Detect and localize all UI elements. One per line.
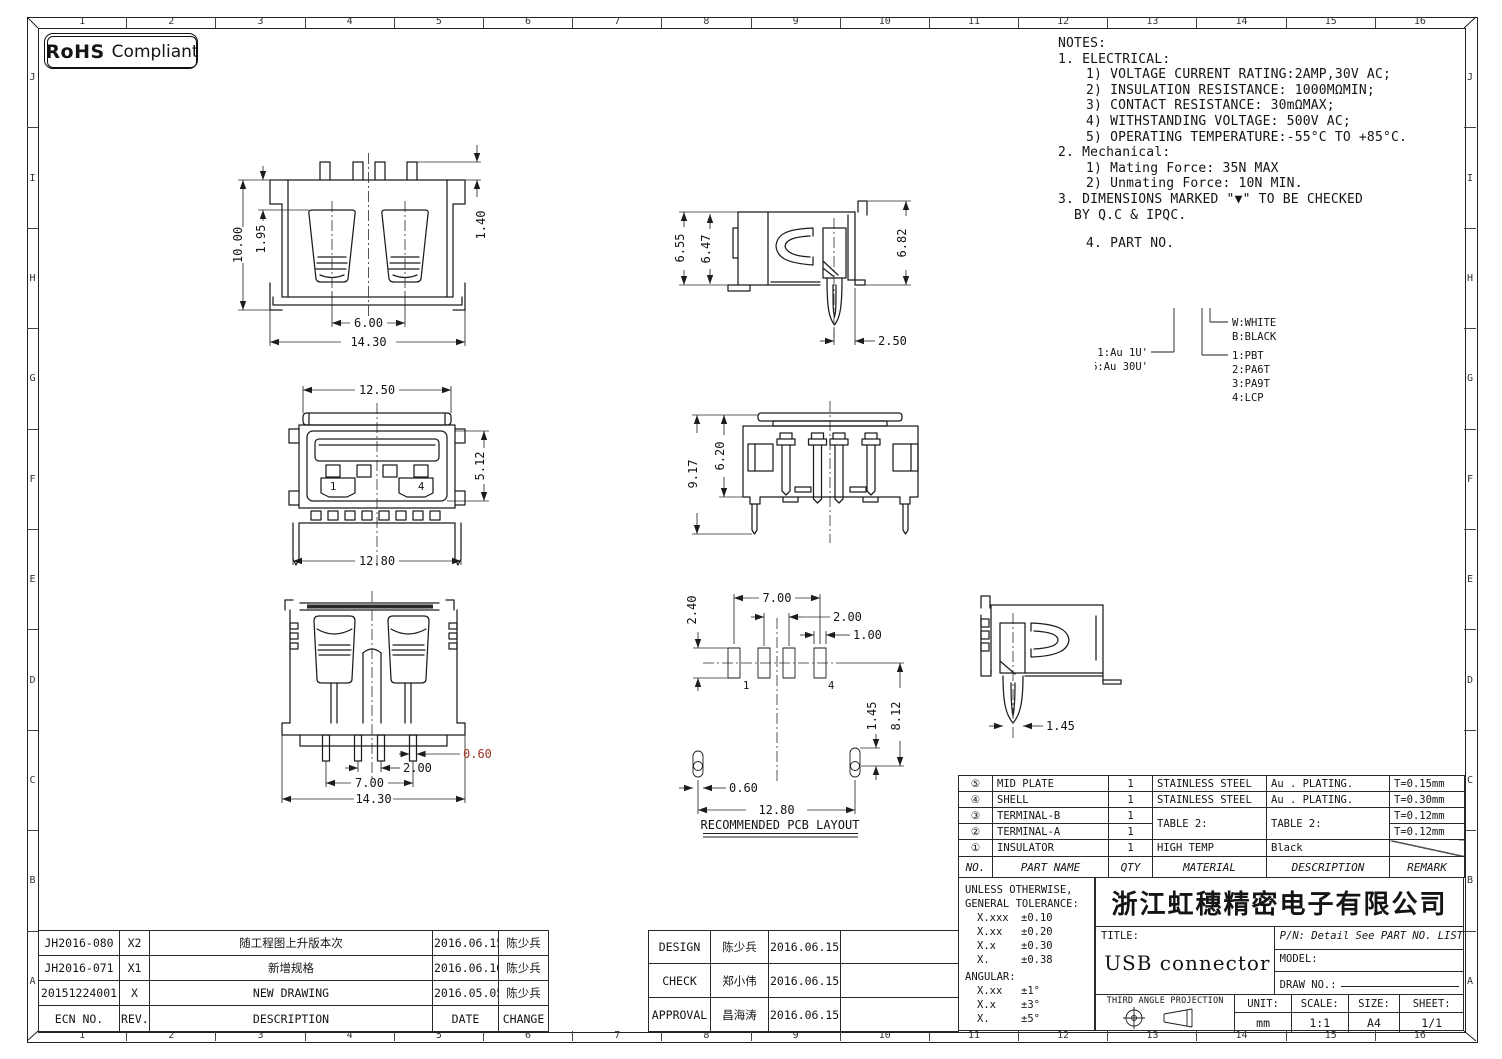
notes-line: 4. PART NO. — [1058, 236, 1468, 252]
notes-line: 2. Mechanical: — [1058, 145, 1468, 161]
company-name: 浙江虹穗精密电子有限公司 — [1096, 878, 1463, 927]
notes-line: 2) Unmating Force: 10N MIN. — [1058, 176, 1468, 192]
approval-date: 2016.06.15 — [769, 998, 841, 1032]
bom-remark-slash — [1390, 840, 1465, 857]
bom-no: ⑤ — [959, 776, 993, 792]
notes-line: 1) Mating Force: 35N MAX — [1058, 161, 1468, 177]
dim-label: 12.80 — [758, 803, 794, 817]
grid-label: 4 — [306, 17, 395, 28]
view-side-smd: 1.45 — [953, 583, 1173, 768]
projection-label: THIRD ANGLE PROJECTION — [1096, 996, 1234, 1006]
legend-leader-lines — [1151, 308, 1228, 355]
grid-label: 9 — [752, 17, 841, 28]
bom-material: STAINLESS STEEL — [1153, 776, 1267, 792]
notes-line: BY Q.C & IPQC. — [1058, 208, 1468, 224]
approval-name: 昌海涛 — [711, 998, 769, 1032]
part-number-line: P/N: Detail See PART NO. LIST — [1275, 927, 1463, 950]
grid-label: 11 — [930, 17, 1019, 28]
grid-label: G — [27, 329, 38, 429]
table-row: 20151224001 X NEW DRAWING 2016.05.05 陈少兵 — [39, 981, 549, 1006]
table-row: ③ TERMINAL-B 1 TABLE 2: TABLE 2: T=0.12m… — [959, 808, 1465, 824]
notes-block: NOTES: 1. ELECTRICAL: 1) VOLTAGE CURRENT… — [1058, 36, 1468, 252]
scale-cell: SCALE: 1:1 — [1292, 995, 1349, 1032]
approval-name: 陈少兵 — [711, 931, 769, 964]
dim-label: 2.00 — [833, 610, 862, 624]
rev-date: 2016.05.05 — [433, 981, 499, 1006]
dim-label: 5.12 — [473, 452, 487, 481]
tol-label: X.x — [977, 939, 1021, 953]
rev-header-date: DATE — [433, 1006, 499, 1032]
bom-table: ⑤ MID PLATE 1 STAINLESS STEEL Au . PLATI… — [958, 775, 1465, 878]
bom-no: ① — [959, 840, 993, 857]
tol-label: X. — [977, 1012, 1021, 1026]
sheet-label: SHEET: — [1400, 995, 1463, 1013]
dim-label: 7.00 — [763, 591, 792, 605]
bom-no: ② — [959, 824, 993, 840]
grid-label: 11 — [930, 1031, 1019, 1041]
rev-ecn: JH2016-080 — [39, 931, 120, 956]
grid-label: H — [27, 229, 38, 329]
bom-part: MID PLATE — [993, 776, 1109, 792]
dim-label: 2.40 — [685, 596, 699, 625]
view-bottom: 0.60 2.00 7.00 14.30 — [257, 583, 537, 813]
scale-value: 1:1 — [1292, 1013, 1348, 1032]
legend-material-3: 3:PA9T — [1232, 378, 1271, 390]
grid-label: 8 — [662, 17, 751, 28]
rev-ecn: JH2016-071 — [39, 956, 120, 981]
bom-qty: 1 — [1109, 776, 1153, 792]
grid-label: E — [27, 530, 38, 630]
dim-label: 1.40 — [474, 211, 488, 240]
model-label: MODEL: — [1275, 950, 1463, 973]
grid-label: I — [27, 128, 38, 228]
rev-header-change: CHANGE — [499, 1006, 549, 1032]
tolerance-title: GENERAL TOLERANCE: — [965, 897, 1094, 911]
grid-label: 2 — [127, 17, 216, 28]
grid-label: G — [1464, 329, 1476, 429]
bom-part: SHELL — [993, 792, 1109, 808]
bom-material: HIGH TEMP — [1153, 840, 1267, 857]
tol-value: ±1° — [1021, 984, 1040, 998]
notes-line: NOTES: — [1058, 36, 1468, 52]
rev-header-rev: REV. — [120, 1006, 150, 1032]
bom-header-no: NO. — [959, 857, 993, 878]
bom-remark: T=0.30mm — [1390, 792, 1465, 808]
pad-number-4: 4 — [828, 680, 834, 692]
grid-label: E — [1464, 530, 1476, 630]
tolerance-angular-title: ANGULAR: — [965, 970, 1094, 984]
notes-line: 4) WITHSTANDING VOLTAGE: 500V AC; — [1058, 114, 1468, 130]
grid-label: 15 — [1287, 1031, 1376, 1041]
grid-label: D — [27, 630, 38, 730]
grid-label: 2 — [127, 1031, 216, 1041]
bom-no: ③ — [959, 808, 993, 824]
table-row: JH2016-080 X2 随工程图上升版本次 2016.06.15 陈少兵 — [39, 931, 549, 956]
approval-role: DESIGN — [649, 931, 711, 964]
grid-label: D — [1464, 630, 1476, 730]
pcb-pads — [693, 648, 860, 777]
projection-cell: THIRD ANGLE PROJECTION — [1096, 995, 1235, 1032]
dim-label: 14.30 — [350, 335, 386, 349]
tol-value: ±0.38 — [1021, 953, 1053, 967]
grid-label: C — [1464, 731, 1476, 831]
border-col-labels-top: 12345678910111213141516 — [38, 17, 1464, 28]
pcb-layout-caption: RECOMMENDED PCB LAYOUT — [701, 818, 860, 832]
rohs-label: RoHS — [45, 41, 104, 63]
bom-remark: T=0.15mm — [1390, 776, 1465, 792]
tolerance-block: UNLESS OTHERWISE, GENERAL TOLERANCE: X.x… — [958, 877, 1095, 1031]
approval-name: 郑小伟 — [711, 964, 769, 998]
grid-label: 15 — [1287, 17, 1376, 28]
grid-label: 5 — [395, 1031, 484, 1041]
side-outline — [728, 201, 867, 325]
bom-material: STAINLESS STEEL — [1153, 792, 1267, 808]
legend-color-white: W:WHITE — [1232, 317, 1276, 329]
tol-label: X. — [977, 953, 1021, 967]
bom-remark: T=0.12mm — [1390, 808, 1465, 824]
unit-label: UNIT: — [1235, 995, 1291, 1013]
table-row: ① INSULATOR 1 HIGH TEMP Black — [959, 840, 1465, 857]
rev-change: 陈少兵 — [499, 956, 549, 981]
title-label: TITLE: — [1101, 930, 1274, 942]
rev-description: NEW DRAWING — [150, 981, 433, 1006]
size-cell: SIZE: A4 — [1349, 995, 1401, 1032]
bom-header-remark: REMARK — [1390, 857, 1465, 878]
title-block: 浙江虹穗精密电子有限公司 TITLE: USB connector P/N: D… — [1095, 877, 1464, 1031]
dim-label: 1.45 — [865, 702, 879, 731]
draw-no-blank-line — [1341, 986, 1459, 987]
tolerance-title: UNLESS OTHERWISE, — [965, 883, 1094, 897]
grid-label: 12 — [1019, 1031, 1108, 1041]
bom-part: TERMINAL-B — [993, 808, 1109, 824]
tol-label: X.xx — [977, 925, 1021, 939]
dim-label: 6.20 — [713, 442, 727, 471]
dim-label: 0.60 — [729, 781, 758, 795]
unit-cell: UNIT: mm — [1235, 995, 1292, 1032]
size-value: A4 — [1349, 1013, 1400, 1032]
grid-label: 7 — [573, 17, 662, 28]
rev-description: 随工程图上升版本次 — [150, 931, 433, 956]
grid-label: 10 — [841, 17, 930, 28]
approval-date: 2016.06.15 — [769, 964, 841, 998]
rev-ecn: 20151224001 — [39, 981, 120, 1006]
grid-label: A — [1464, 932, 1476, 1031]
grid-label: J — [27, 28, 38, 128]
tolerance-row: X.x±3° — [965, 998, 1094, 1012]
pin-number-4: 4 — [418, 481, 424, 493]
rev-date: 2016.06.15 — [433, 931, 499, 956]
third-angle-projection-icon — [1096, 1006, 1234, 1030]
front-outline — [270, 162, 465, 310]
bom-qty: 1 — [1109, 808, 1153, 824]
tolerance-row: X.xx±0.20 — [965, 925, 1094, 939]
grid-label: 16 — [1376, 17, 1464, 28]
bom-header-qty: QTY — [1109, 857, 1153, 878]
view-side: 6.55 6.47 6.82 2.50 — [663, 183, 933, 363]
table-row: ECN NO. REV. DESCRIPTION DATE CHANGE — [39, 1006, 549, 1032]
dim-label: 9.17 — [686, 460, 700, 489]
border-col-labels-bottom: 12345678910111213141516 — [38, 1031, 1464, 1041]
approval-empty — [841, 931, 959, 964]
view-front: 10.00 1.95 1.40 6.00 14.30 — [225, 133, 525, 358]
grid-label: F — [1464, 430, 1476, 530]
bom-description-merged: TABLE 2: — [1267, 808, 1390, 840]
title-cell: TITLE: USB connector — [1096, 927, 1275, 994]
notes-line: 1. ELECTRICAL: — [1058, 52, 1468, 68]
grid-label: 7 — [573, 1031, 662, 1041]
notes-line: 3) CONTACT RESISTANCE: 30mΩMAX; — [1058, 98, 1468, 114]
dim-label: 6.82 — [895, 229, 909, 258]
tol-value: ±0.10 — [1021, 911, 1053, 925]
dim-label: 10.00 — [231, 227, 245, 263]
dim-label: 1.00 — [853, 628, 882, 642]
grid-label: 12 — [1019, 17, 1108, 28]
rev-rev: X1 — [120, 956, 150, 981]
grid-label: 4 — [306, 1031, 395, 1041]
grid-label: F — [27, 430, 38, 530]
front-centerlines — [332, 153, 405, 318]
rev-date: 2016.06.10 — [433, 956, 499, 981]
legend-material-1: 1:PBT — [1232, 350, 1264, 362]
drawing-sheet: 12345678910111213141516 1234567891011121… — [0, 0, 1502, 1059]
bom-qty: 1 — [1109, 824, 1153, 840]
bom-no: ④ — [959, 792, 993, 808]
legend-plating-2: 6:Au 30U' — [1095, 361, 1148, 373]
grid-label: 9 — [752, 1031, 841, 1041]
tol-value: ±0.30 — [1021, 939, 1053, 953]
tolerance-row: X.xxx±0.10 — [965, 911, 1094, 925]
table-row: JH2016-071 X1 新增规格 2016.06.10 陈少兵 — [39, 956, 549, 981]
bom-header-material: MATERIAL — [1153, 857, 1267, 878]
bom-description: Au . PLATING. — [1267, 776, 1390, 792]
grid-label: 5 — [395, 17, 484, 28]
dim-label: 2.50 — [878, 334, 907, 348]
grid-label: 1 — [38, 17, 127, 28]
grid-label: 10 — [841, 1031, 930, 1041]
compliant-label: Compliant — [112, 42, 199, 62]
part-no-legend: 1:Au 1U' 6:Au 30U' W:WHITE B:BLACK 1:PBT… — [1095, 295, 1355, 410]
dim-label: 7.00 — [355, 776, 384, 790]
bom-material-merged: TABLE 2: — [1153, 808, 1267, 840]
grid-label: 14 — [1197, 17, 1286, 28]
table-row: ④ SHELL 1 STAINLESS STEEL Au . PLATING. … — [959, 792, 1465, 808]
grid-label: 3 — [216, 17, 305, 28]
rohs-stamp: RoHS Compliant — [44, 33, 198, 69]
dim-label: 12.80 — [359, 554, 395, 568]
bom-part: TERMINAL-A — [993, 824, 1109, 840]
pin-number-1: 1 — [330, 481, 336, 493]
dim-label: 14.30 — [355, 792, 391, 806]
bom-qty: 1 — [1109, 840, 1153, 857]
table-row: ⑤ MID PLATE 1 STAINLESS STEEL Au . PLATI… — [959, 776, 1465, 792]
rev-rev: X — [120, 981, 150, 1006]
tol-label: X.xx — [977, 984, 1021, 998]
sheet-value: 1/1 — [1400, 1013, 1463, 1032]
bom-header-part: PART NAME — [993, 857, 1109, 878]
approval-role: APPROVAL — [649, 998, 711, 1032]
legend-plating-1: 1:Au 1U' — [1097, 347, 1148, 359]
dim-label: 0.60 — [463, 747, 492, 761]
rear-outline — [743, 413, 918, 534]
grid-label: 3 — [216, 1031, 305, 1041]
tol-label: X.xxx — [977, 911, 1021, 925]
table-row: APPROVAL 昌海涛 2016.06.15 — [649, 998, 959, 1032]
revision-table: JH2016-080 X2 随工程图上升版本次 2016.06.15 陈少兵 J… — [38, 930, 549, 1032]
grid-label: 6 — [484, 1031, 573, 1041]
sheet-cell: SHEET: 1/1 — [1400, 995, 1463, 1032]
notes-line: 2) INSULATION RESISTANCE: 1000MΩMIN; — [1058, 83, 1468, 99]
dim-label: 1.95 — [254, 225, 268, 254]
size-label: SIZE: — [1349, 995, 1400, 1013]
rev-header-description: DESCRIPTION — [150, 1006, 433, 1032]
side-dimensions — [679, 201, 911, 345]
drawing-title: USB connector — [1101, 951, 1274, 975]
pcb-centerlines — [703, 618, 843, 783]
draw-no-label: DRAW NO.: — [1280, 979, 1337, 991]
tol-value: ±5° — [1021, 1012, 1040, 1026]
tol-label: X.x — [977, 998, 1021, 1012]
dim-label: 6.55 — [673, 234, 687, 263]
bom-remark: T=0.12mm — [1390, 824, 1465, 840]
notes-line: 3. DIMENSIONS MARKED "▼" TO BE CHECKED — [1058, 192, 1468, 208]
tol-value: ±0.20 — [1021, 925, 1053, 939]
rev-description: 新增规格 — [150, 956, 433, 981]
grid-label: 16 — [1376, 1031, 1464, 1041]
tolerance-row: X.±5° — [965, 1012, 1094, 1026]
table-row: CHECK 郑小伟 2016.06.15 — [649, 964, 959, 998]
legend-color-black: B:BLACK — [1232, 331, 1277, 343]
rev-header-ecn: ECN NO. — [39, 1006, 120, 1032]
approval-empty — [841, 998, 959, 1032]
pcb-caption-underline — [703, 834, 858, 838]
notes-line: 5) OPERATING TEMPERATURE:-55°C TO +85°C. — [1058, 130, 1468, 146]
grid-label: 13 — [1108, 17, 1197, 28]
approval-empty — [841, 964, 959, 998]
view-rear: 9.17 6.20 — [683, 393, 943, 573]
tolerance-row: X.xx±1° — [965, 984, 1094, 998]
legend-material-4: 4:LCP — [1232, 392, 1264, 404]
pad-number-1: 1 — [743, 680, 749, 692]
rev-rev: X2 — [120, 931, 150, 956]
table-row: DESIGN 陈少兵 2016.06.15 — [649, 931, 959, 964]
grid-label: B — [27, 831, 38, 931]
approval-role: CHECK — [649, 964, 711, 998]
dim-label: 8.12 — [889, 702, 903, 731]
grid-label: 1 — [38, 1031, 127, 1041]
tolerance-row: X.x±0.30 — [965, 939, 1094, 953]
unit-value: mm — [1235, 1013, 1291, 1032]
dim-label: 6.47 — [699, 235, 713, 264]
view-pcb-layout: 2.40 7.00 2.00 1.00 8.12 1.45 0.60 12.80… — [648, 588, 948, 843]
grid-label: B — [1464, 831, 1476, 931]
bom-qty: 1 — [1109, 792, 1153, 808]
grid-label: 6 — [484, 17, 573, 28]
grid-label: A — [27, 932, 38, 1031]
legend-material-2: 2:PA6T — [1232, 364, 1271, 376]
notes-line: 1) VOLTAGE CURRENT RATING:2AMP,30V AC; — [1058, 67, 1468, 83]
rev-change: 陈少兵 — [499, 981, 549, 1006]
tol-value: ±3° — [1021, 998, 1040, 1012]
bottom-outline — [282, 600, 465, 761]
rev-change: 陈少兵 — [499, 931, 549, 956]
approval-table: DESIGN 陈少兵 2016.06.15 CHECK 郑小伟 2016.06.… — [648, 930, 959, 1032]
table-row: NO. PART NAME QTY MATERIAL DESCRIPTION R… — [959, 857, 1465, 878]
side2-outline — [981, 596, 1121, 723]
dim-label: 12.50 — [359, 383, 395, 397]
approval-date: 2016.06.15 — [769, 931, 841, 964]
bom-header-description: DESCRIPTION — [1267, 857, 1390, 878]
dim-label: 1.45 — [1046, 719, 1075, 733]
dim-label: 2.00 — [403, 761, 432, 775]
bom-description: Au . PLATING. — [1267, 792, 1390, 808]
grid-label: 8 — [662, 1031, 751, 1041]
rear-dimensions — [692, 415, 758, 534]
scale-label: SCALE: — [1292, 995, 1348, 1013]
view-face: 12.50 5.12 12.80 1 4 — [263, 373, 528, 573]
dim-label: 6.00 — [354, 316, 383, 330]
grid-label: C — [27, 731, 38, 831]
tolerance-row: X.±0.38 — [965, 953, 1094, 967]
bom-part: INSULATOR — [993, 840, 1109, 857]
border-row-labels-left: JIHGFEDCBA — [27, 28, 38, 1031]
bom-description: Black — [1267, 840, 1390, 857]
